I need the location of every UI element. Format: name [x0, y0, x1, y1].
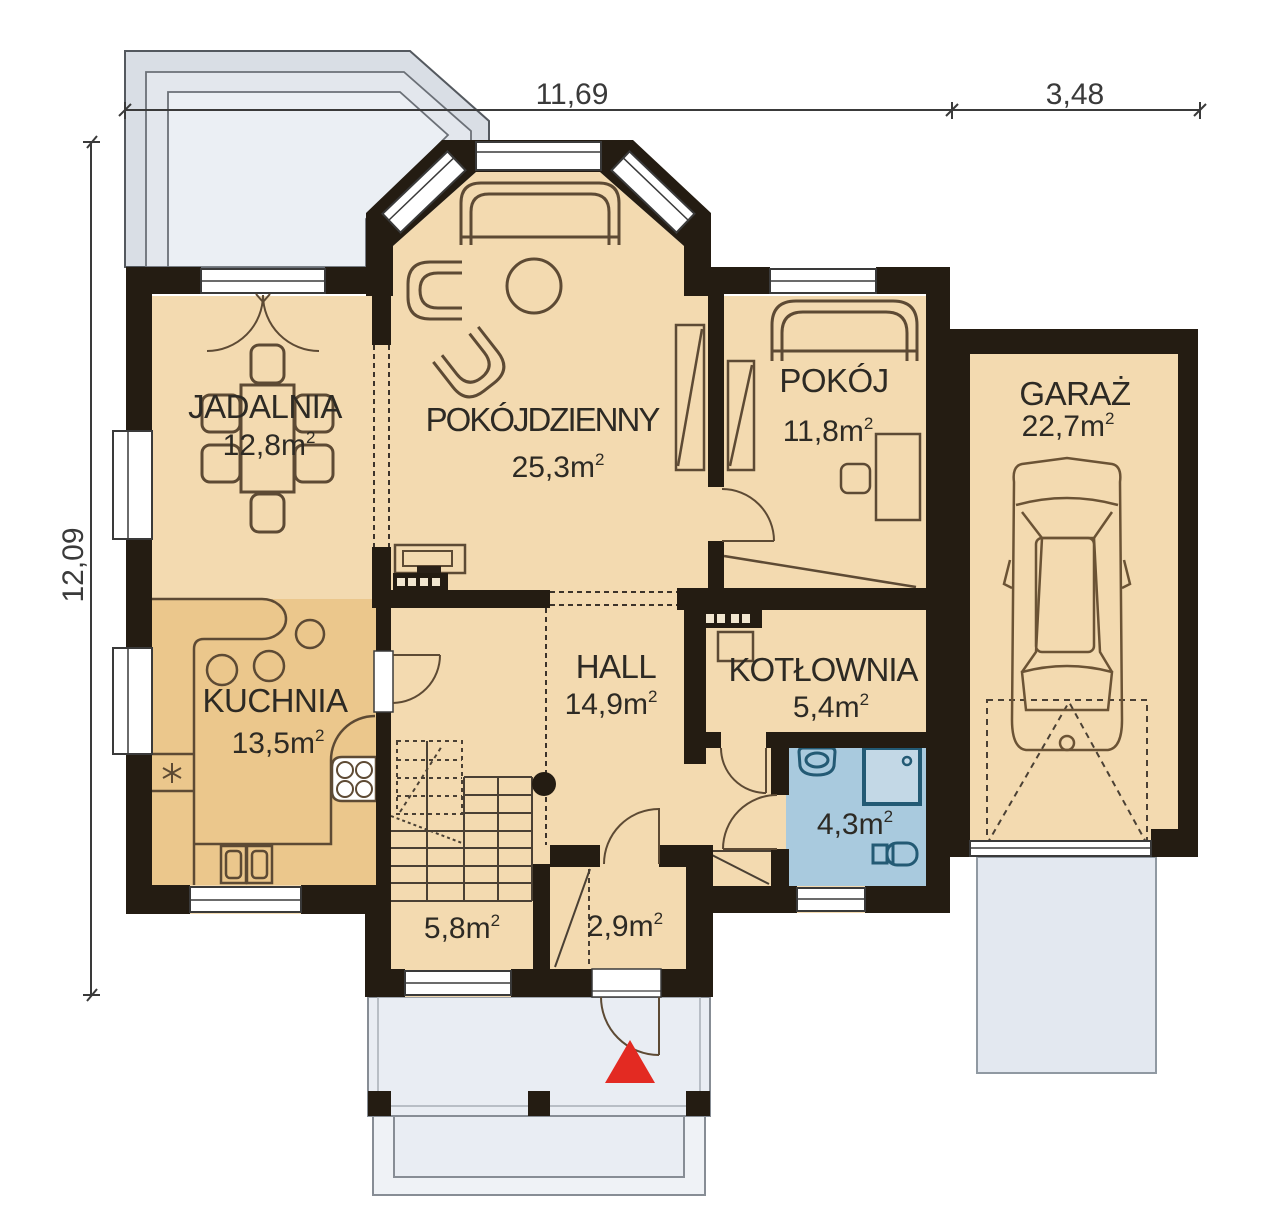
svg-text:14,9m2: 14,9m2	[565, 687, 658, 721]
svg-text:22,7m2: 22,7m2	[1022, 409, 1115, 443]
svg-text:13,5m2: 13,5m2	[232, 726, 325, 760]
svg-text:GARAŻ: GARAŻ	[1019, 375, 1131, 412]
svg-text:5,4m2: 5,4m2	[793, 690, 869, 724]
svg-text:4,3m2: 4,3m2	[817, 807, 893, 841]
svg-text:POKÓJDZIENNY: POKÓJDZIENNY	[426, 401, 661, 438]
svg-text:11,69: 11,69	[536, 78, 609, 111]
svg-text:2,9m2: 2,9m2	[587, 909, 663, 943]
svg-text:12,09: 12,09	[57, 527, 90, 602]
svg-text:5,8m2: 5,8m2	[424, 911, 500, 945]
svg-text:KUCHNIA: KUCHNIA	[202, 682, 348, 719]
svg-text:25,3m2: 25,3m2	[512, 450, 605, 484]
svg-text:11,8m2: 11,8m2	[783, 414, 874, 448]
svg-text:12,8m2: 12,8m2	[223, 428, 316, 462]
svg-text:HALL: HALL	[576, 648, 657, 685]
svg-text:POKÓJ: POKÓJ	[779, 362, 888, 399]
svg-text:JADALNIA: JADALNIA	[188, 388, 342, 425]
svg-text:KOTŁOWNIA: KOTŁOWNIA	[728, 651, 918, 688]
svg-text:3,48: 3,48	[1046, 78, 1104, 111]
